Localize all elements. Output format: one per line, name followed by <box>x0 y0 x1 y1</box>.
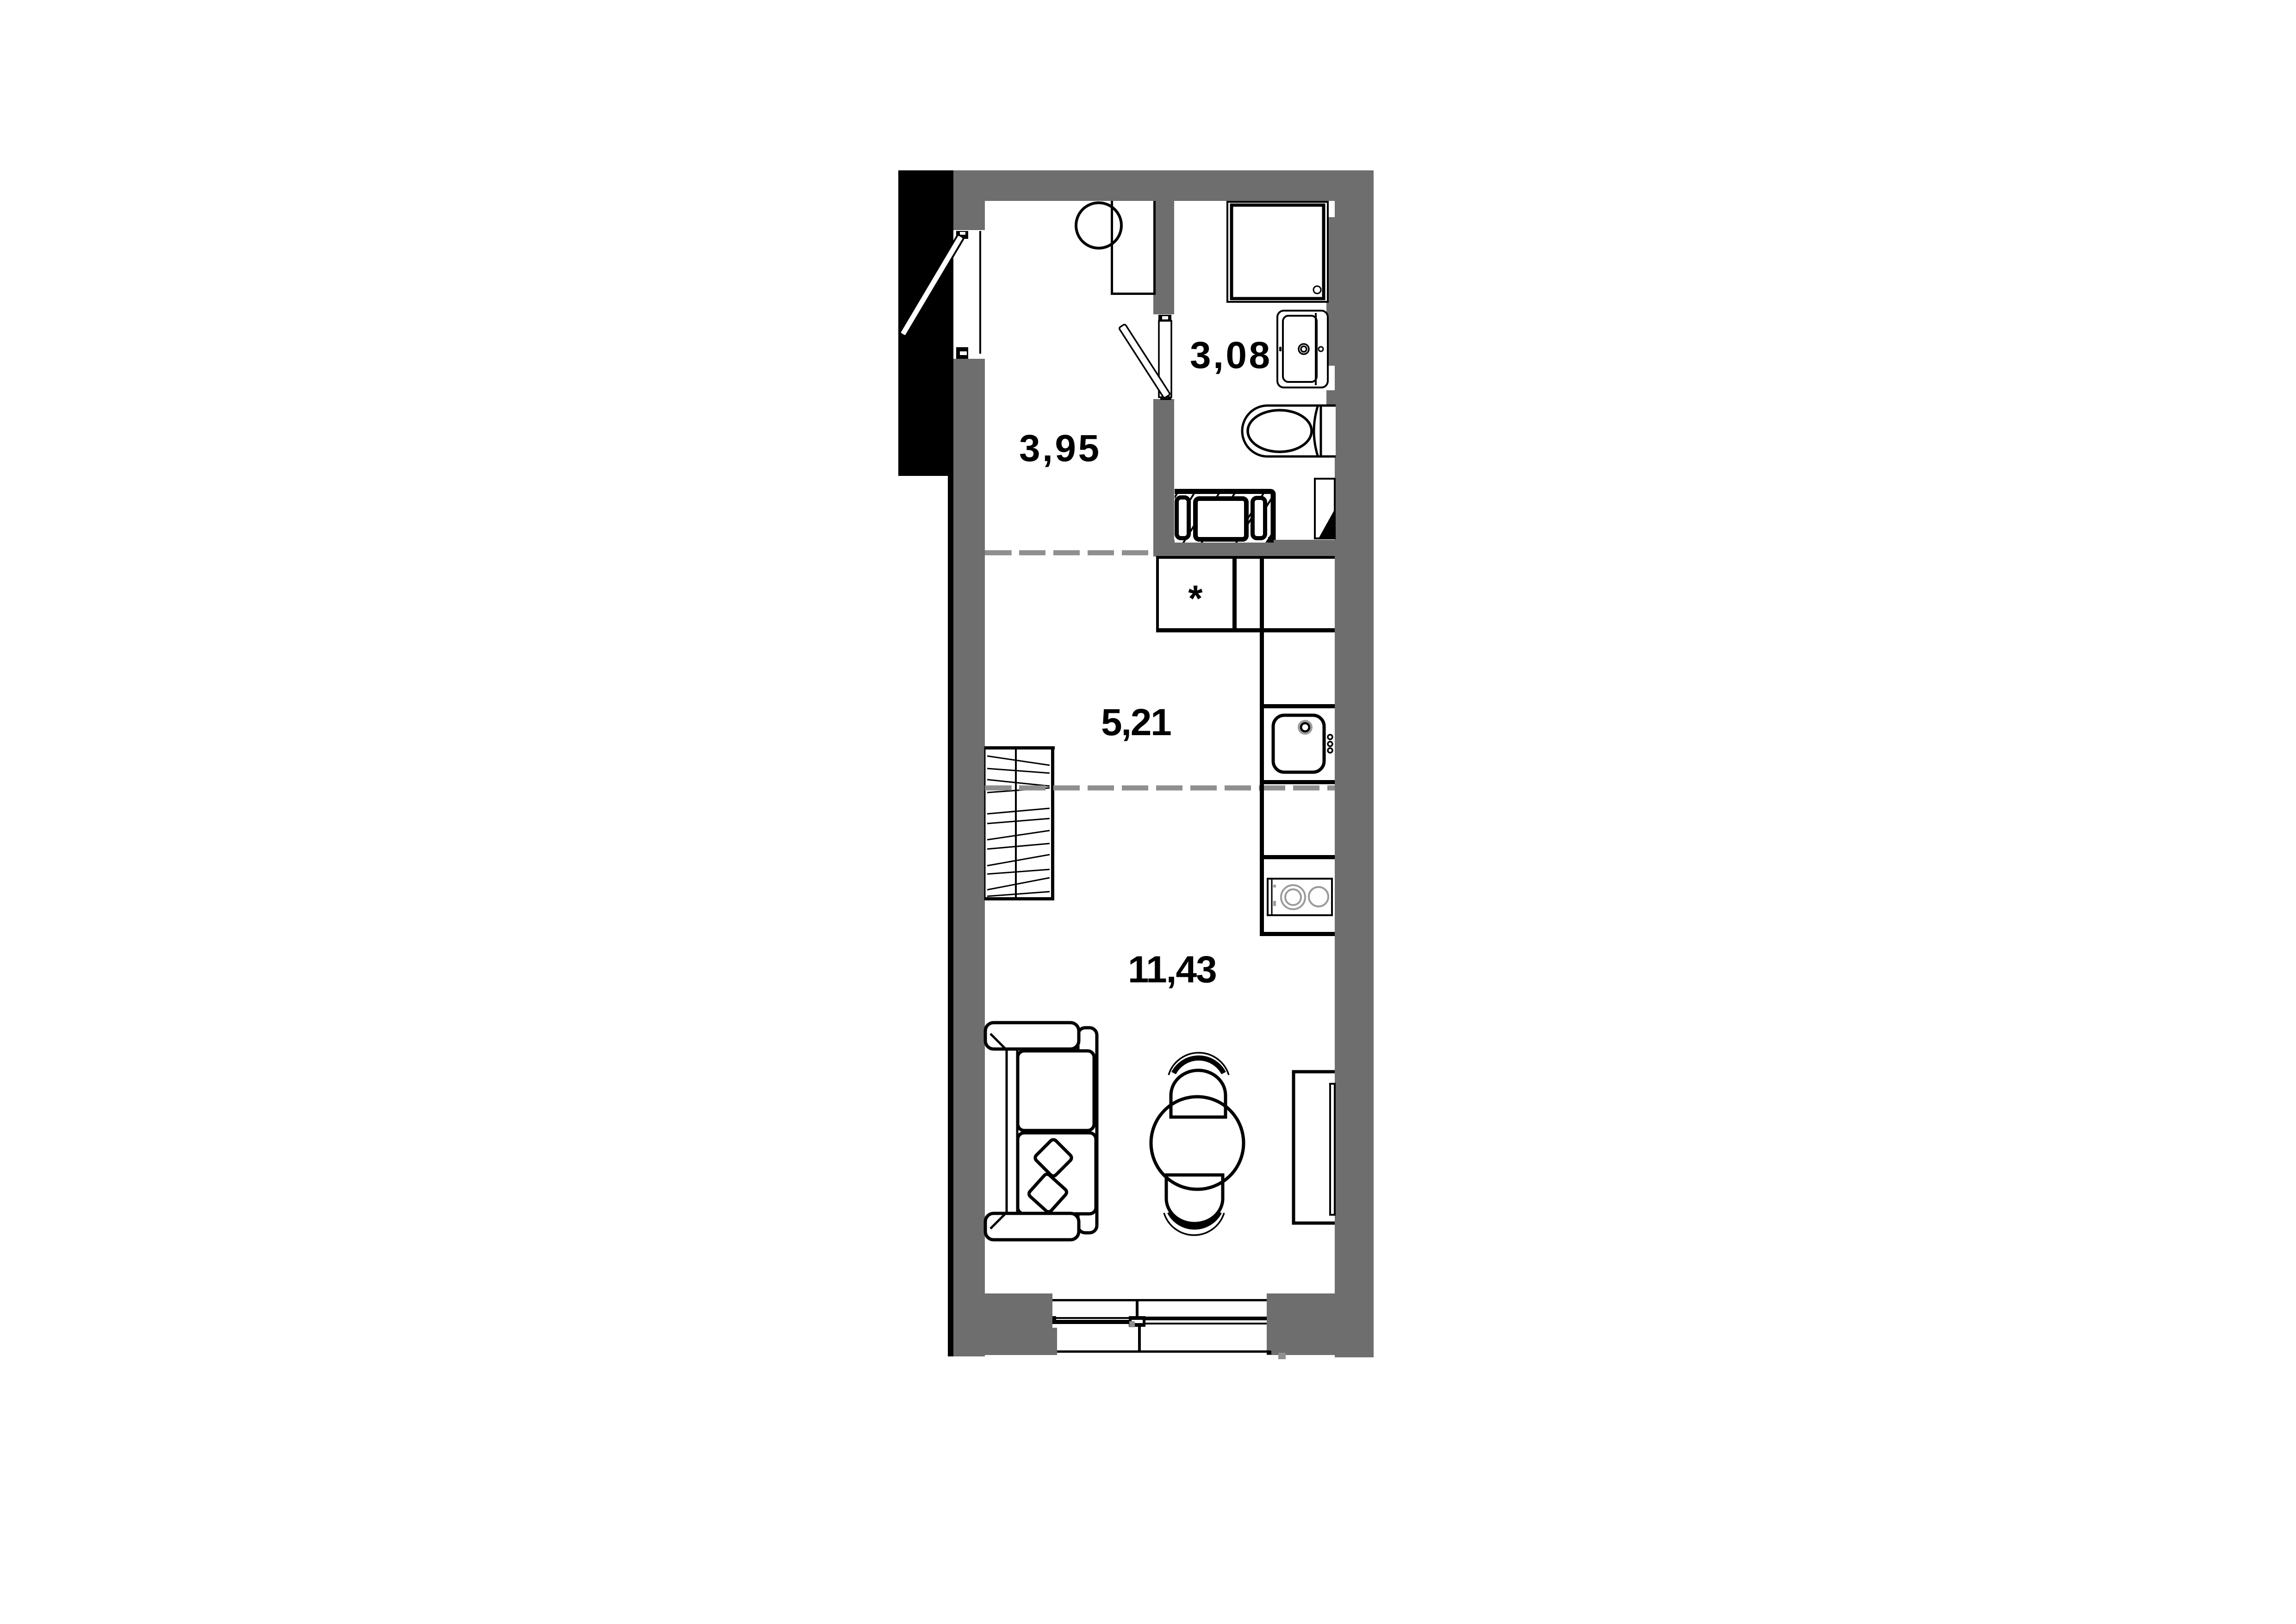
svg-text:3,08: 3,08 <box>1190 334 1272 376</box>
svg-text:5,21: 5,21 <box>1101 701 1171 743</box>
svg-text:*: * <box>1188 578 1203 619</box>
svg-text:11,43: 11,43 <box>1128 949 1216 991</box>
svg-text:3,95: 3,95 <box>1019 427 1101 469</box>
